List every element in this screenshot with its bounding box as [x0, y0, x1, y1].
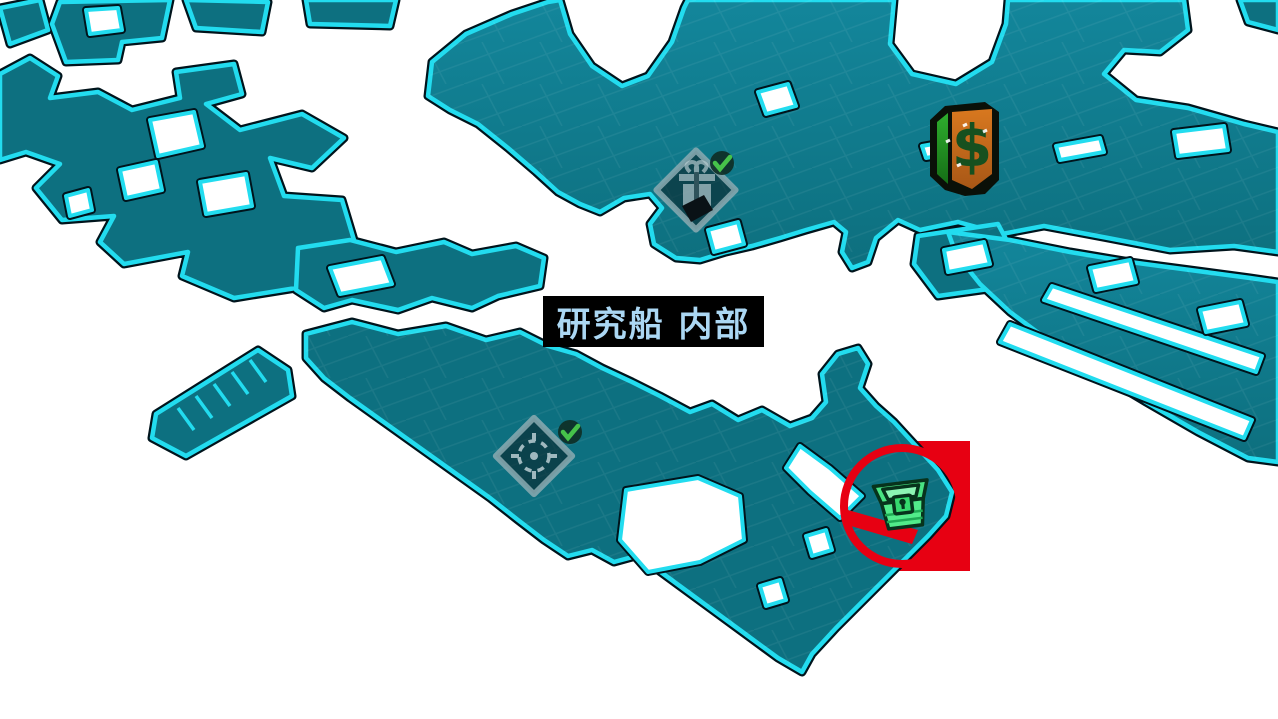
map-region	[428, 0, 1278, 268]
map-room-cutout	[120, 162, 162, 198]
map-room-cutout	[806, 530, 832, 556]
gift-check-badge	[710, 151, 734, 175]
map-room-cutout	[86, 8, 122, 34]
map-room-cutout	[66, 190, 92, 216]
map-room-cutout	[200, 174, 252, 214]
map-room-cutout	[758, 84, 796, 114]
dollar-sign: $	[952, 112, 992, 180]
map-room-cutout	[1174, 126, 1228, 156]
map-canvas[interactable]: $	[0, 0, 1278, 719]
location-label-text: 研究船 内部	[557, 297, 751, 346]
game-map-screen: $ 研究船 内部	[0, 0, 1278, 719]
map-room-cutout	[150, 112, 202, 156]
map-room-cutout	[760, 580, 786, 606]
vending-machine-icon[interactable]: $	[930, 102, 999, 196]
vending-side	[937, 113, 948, 184]
map-region	[306, 0, 396, 26]
crosshair-check-badge	[558, 420, 582, 444]
map-region	[186, 0, 268, 32]
location-label: 研究船 内部	[543, 296, 764, 347]
map-room-cutout	[708, 222, 744, 252]
